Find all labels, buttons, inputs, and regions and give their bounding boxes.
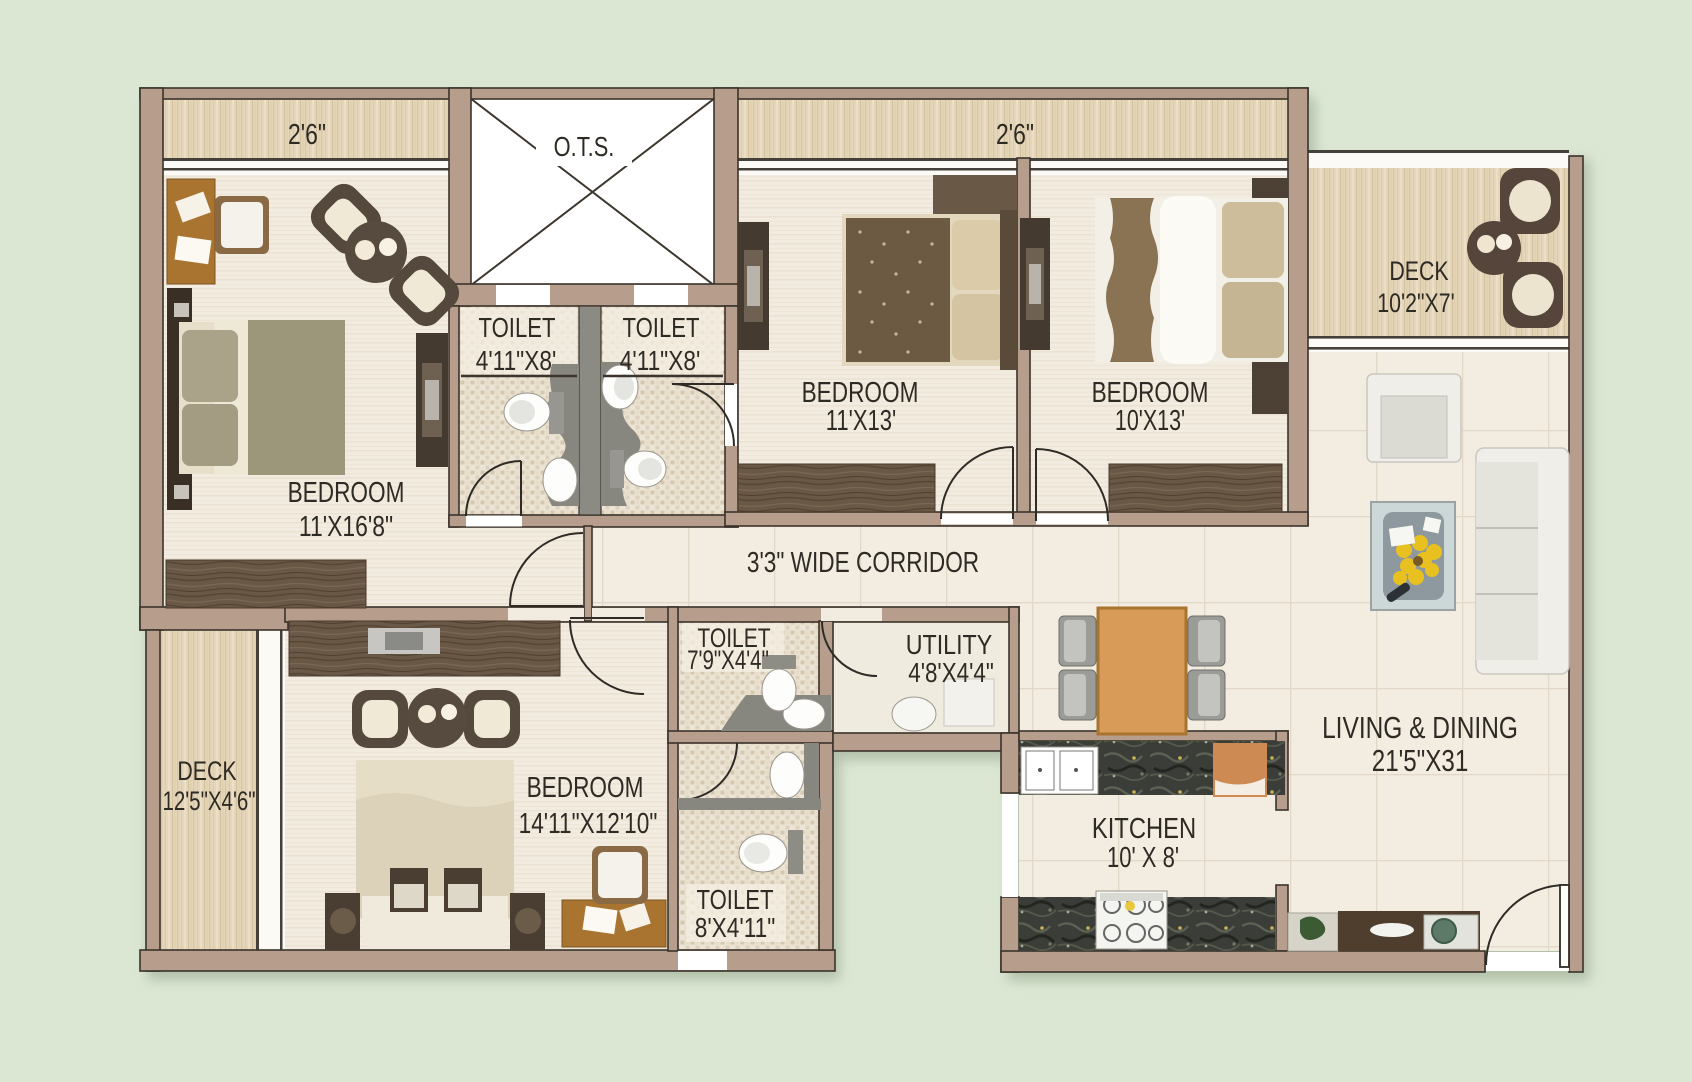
svg-text:4'8'X4'4": 4'8'X4'4" (908, 658, 994, 689)
svg-text:11'X16'8": 11'X16'8" (299, 509, 393, 542)
svg-text:8'X4'11": 8'X4'11" (695, 913, 776, 944)
svg-text:2'6": 2'6" (996, 117, 1034, 150)
svg-text:DECK: DECK (177, 757, 236, 787)
svg-text:10' X 8': 10' X 8' (1107, 842, 1179, 874)
svg-text:KITCHEN: KITCHEN (1092, 812, 1196, 845)
svg-text:14'11"X12'10": 14'11"X12'10" (519, 806, 658, 839)
svg-text:10'X13': 10'X13' (1115, 405, 1185, 437)
svg-text:UTILITY: UTILITY (906, 630, 992, 660)
svg-text:LIVING & DINING: LIVING & DINING (1322, 710, 1518, 744)
svg-text:10'2"X7': 10'2"X7' (1377, 289, 1454, 319)
svg-text:4'11"X8': 4'11"X8' (620, 346, 701, 377)
svg-text:DECK: DECK (1389, 257, 1448, 287)
svg-text:4'11"X8': 4'11"X8' (476, 346, 557, 377)
svg-text:BEDROOM: BEDROOM (1092, 375, 1209, 408)
svg-text:3'3" WIDE CORRIDOR: 3'3" WIDE CORRIDOR (747, 545, 979, 578)
svg-text:7'9"X4'4": 7'9"X4'4" (687, 645, 769, 675)
svg-text:TOILET: TOILET (697, 885, 774, 916)
svg-text:21'5"X31: 21'5"X31 (1372, 743, 1469, 778)
svg-text:O.T.S.: O.T.S. (554, 131, 615, 162)
svg-text:2'6": 2'6" (288, 117, 326, 150)
svg-text:TOILET: TOILET (479, 313, 556, 344)
svg-text:BEDROOM: BEDROOM (288, 475, 405, 508)
svg-text:12'5"X4'6": 12'5"X4'6" (162, 786, 255, 816)
svg-text:BEDROOM: BEDROOM (527, 770, 644, 803)
svg-text:BEDROOM: BEDROOM (802, 375, 919, 408)
svg-text:TOILET: TOILET (623, 313, 700, 344)
svg-text:11'X13': 11'X13' (826, 405, 897, 437)
